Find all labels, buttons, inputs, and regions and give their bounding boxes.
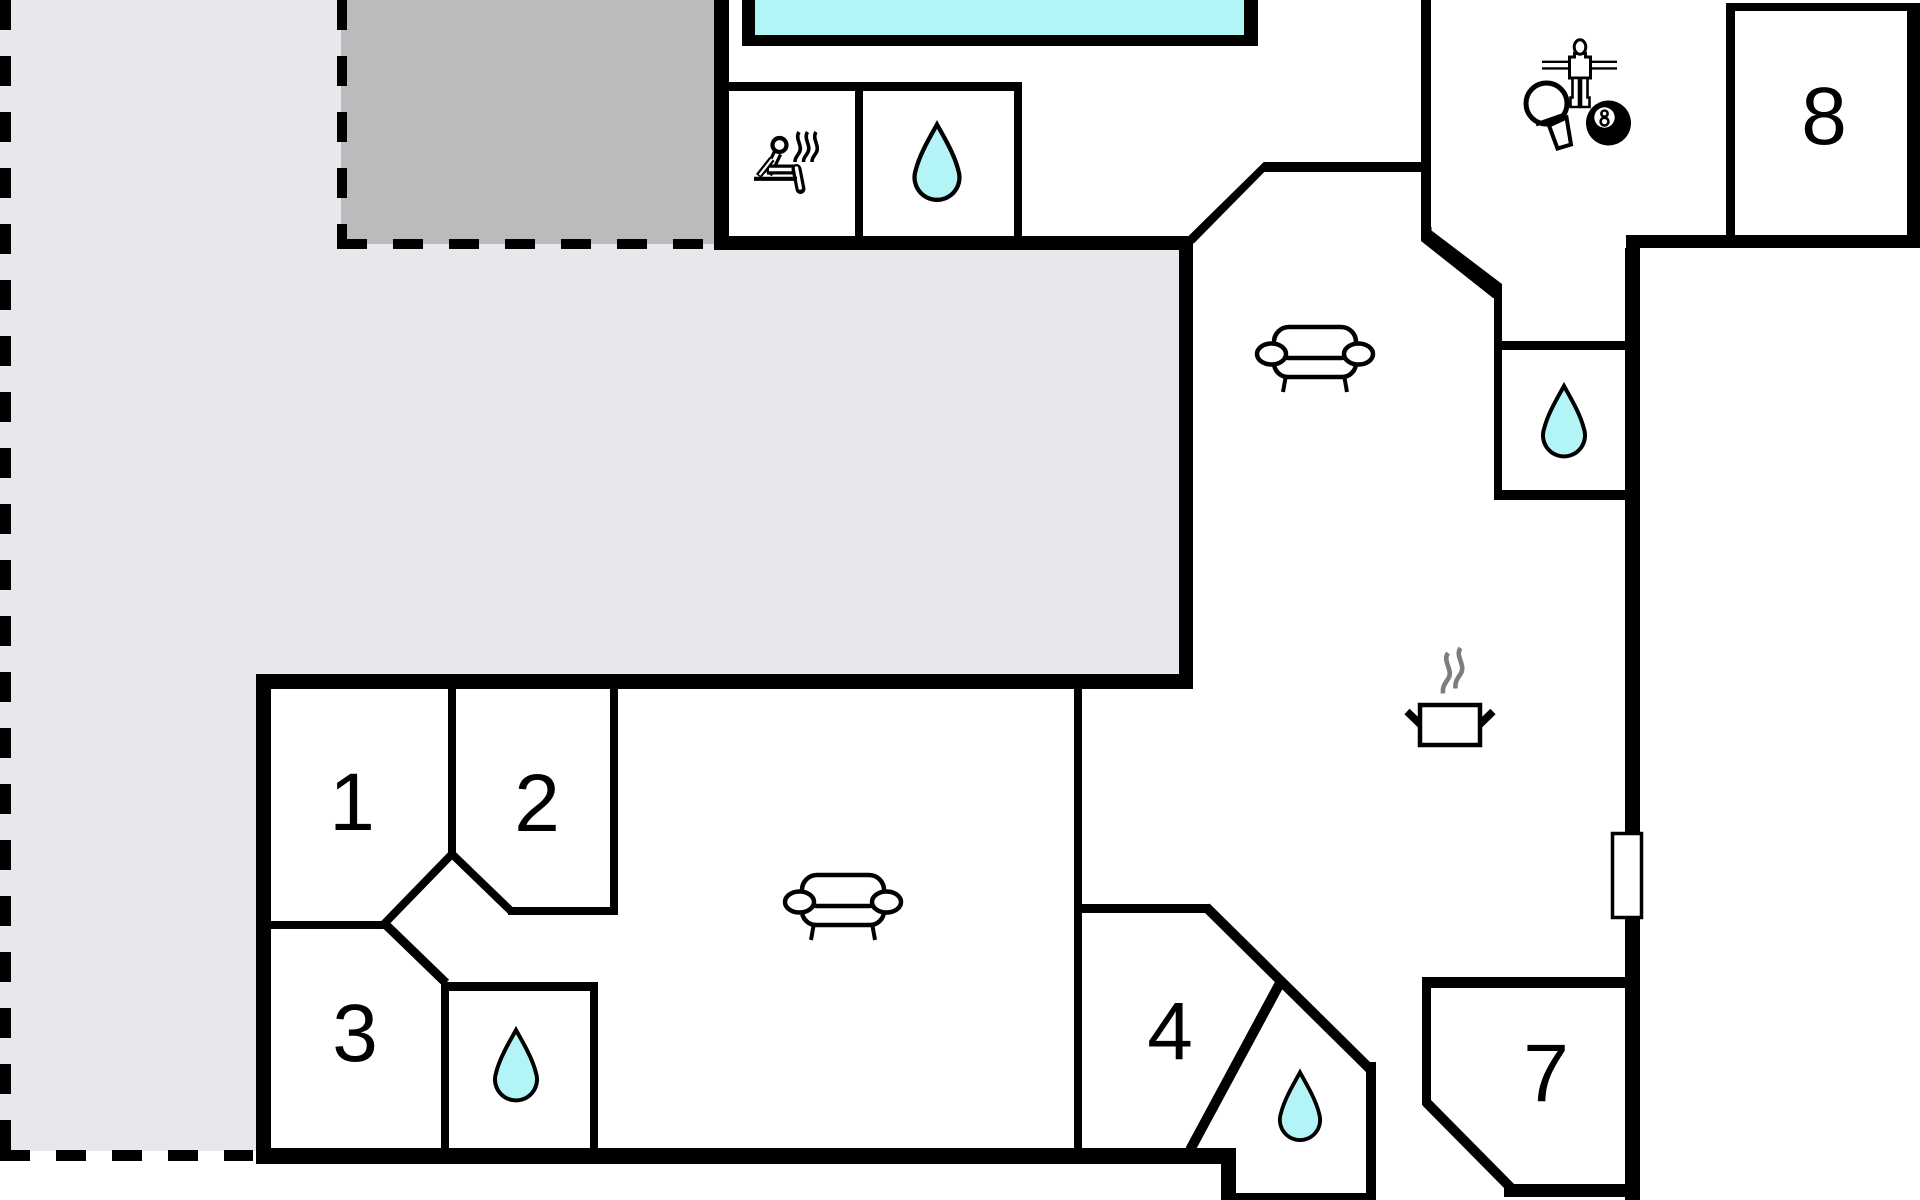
svg-text:7: 7 [1523,1028,1569,1119]
svg-text:2: 2 [514,758,560,849]
svg-text:8: 8 [1801,71,1847,162]
svg-text:1: 1 [329,757,375,848]
svg-text:4: 4 [1147,986,1193,1077]
svg-text:3: 3 [332,988,378,1079]
